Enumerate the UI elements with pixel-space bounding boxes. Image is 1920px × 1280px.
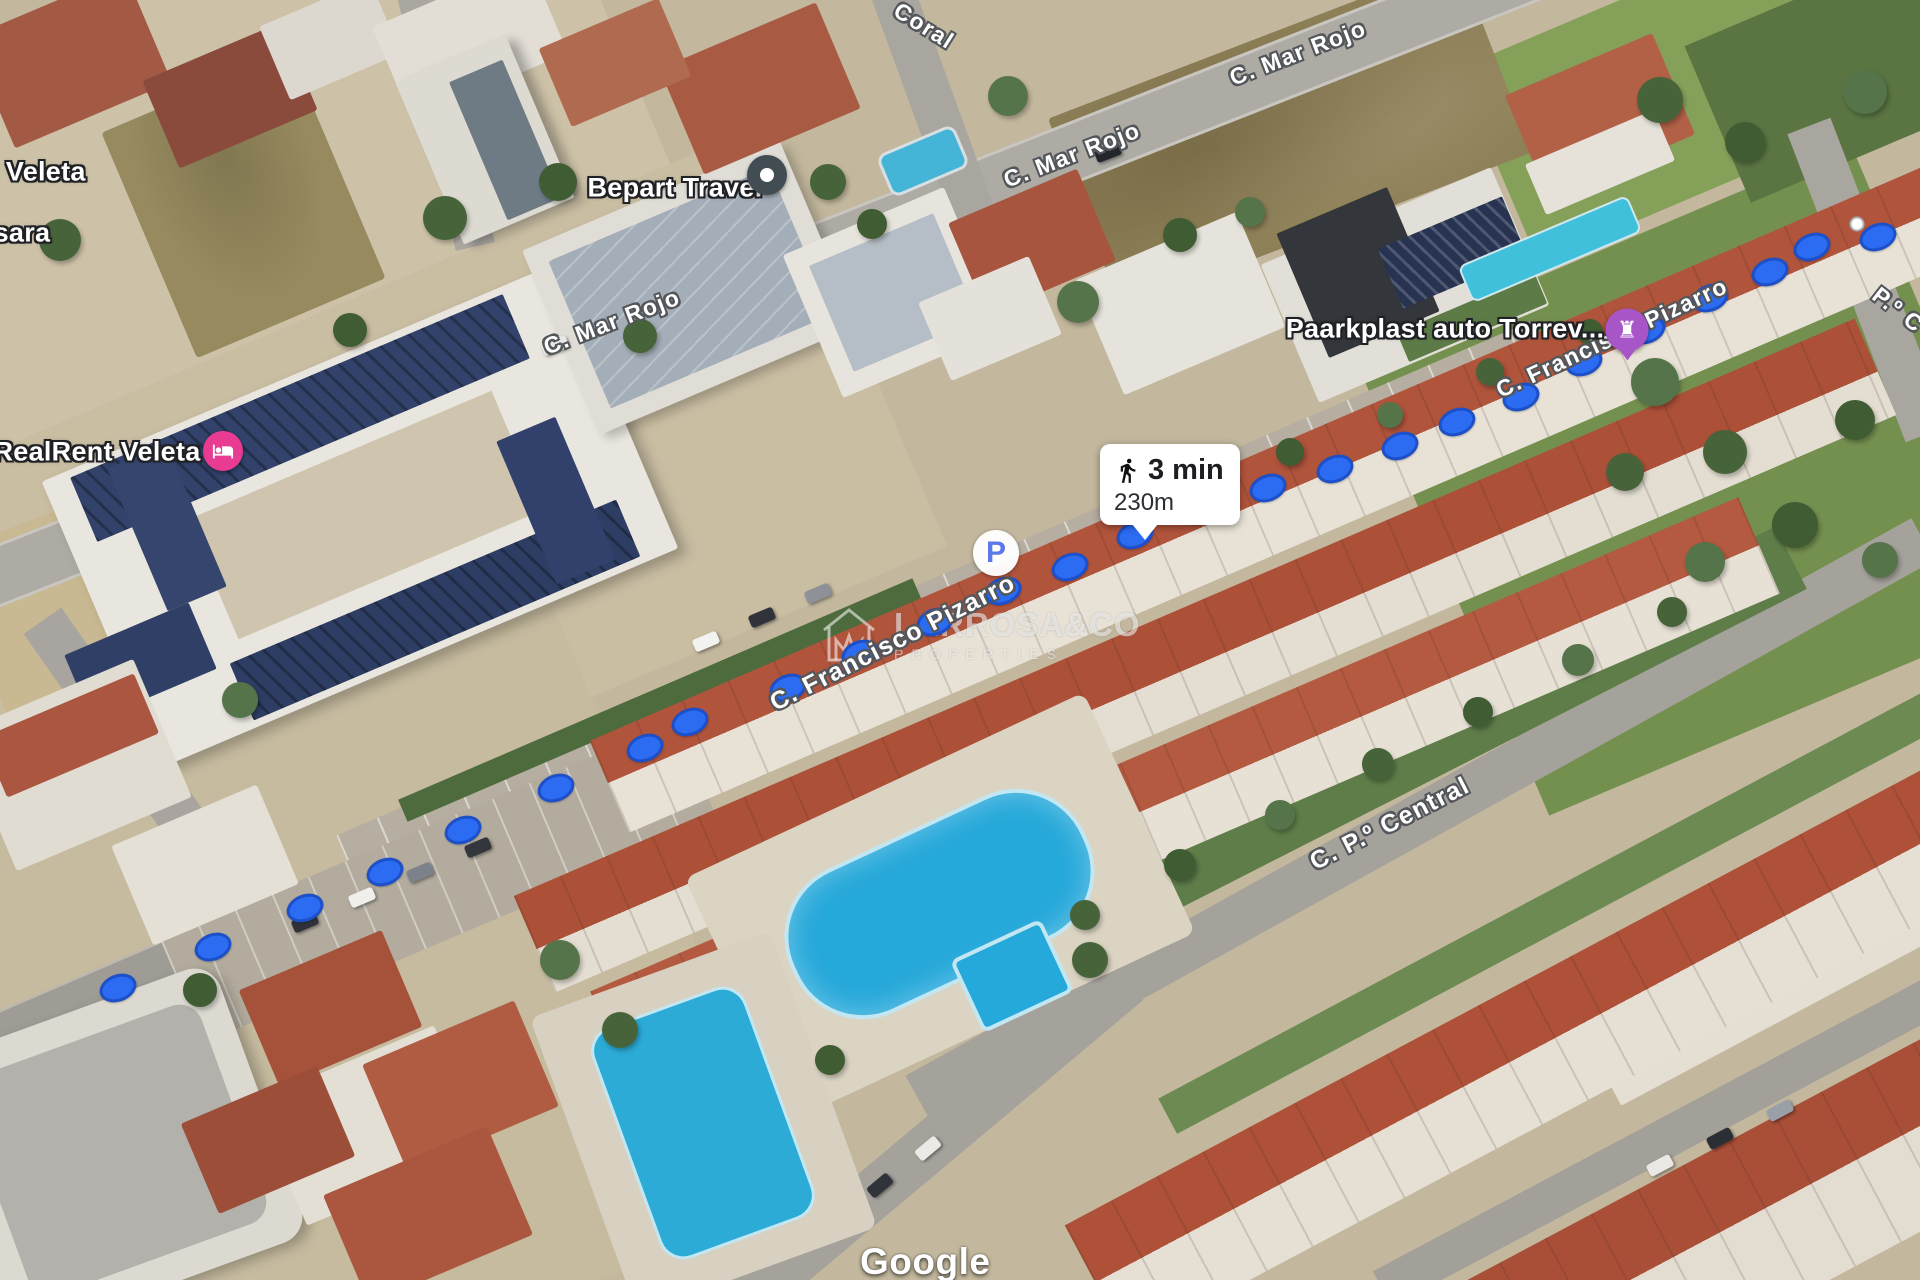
tree <box>1725 122 1765 162</box>
tree <box>1606 453 1644 491</box>
tree <box>539 163 577 201</box>
tree <box>1835 400 1875 440</box>
castle-rook-icon: ♜ <box>1617 319 1638 342</box>
tree <box>857 209 887 239</box>
tree <box>423 196 467 240</box>
tree <box>1362 748 1394 780</box>
marker-center-dot <box>760 168 774 182</box>
tree <box>810 164 846 200</box>
parking-letter: P <box>986 536 1006 570</box>
route-endpoint-dot <box>1850 217 1865 232</box>
tree <box>1772 502 1818 548</box>
tree <box>1057 281 1099 323</box>
tree <box>1703 430 1747 474</box>
tree <box>1072 942 1108 978</box>
tree <box>1657 597 1687 627</box>
google-logo: Google <box>860 1241 990 1280</box>
bed-icon <box>212 440 234 462</box>
tree <box>1685 542 1725 582</box>
tree <box>1862 542 1898 578</box>
poi-label-paarkplast[interactable]: Paarkplast auto Torrev... <box>1286 314 1605 345</box>
poi-label-partial-veleta[interactable]: l Veleta <box>0 157 86 188</box>
tree <box>1265 800 1295 830</box>
route-duration: 3 min <box>1148 454 1224 487</box>
tree <box>222 682 258 718</box>
tree <box>1276 438 1304 466</box>
tree <box>333 313 367 347</box>
tree <box>540 940 580 980</box>
parking-icon[interactable]: P <box>973 530 1019 576</box>
tree <box>815 1045 845 1075</box>
tree <box>1235 197 1265 227</box>
google-maps-satellite-view[interactable]: LARROSA&CO PROPERTIES Coral C. Mar Rojo … <box>0 0 1920 1280</box>
poi-label-partial-sara[interactable]: sara <box>0 218 50 249</box>
walking-person-icon <box>1114 457 1141 484</box>
tree <box>1070 900 1100 930</box>
tree <box>602 1012 638 1048</box>
terrain-shape <box>659 2 860 174</box>
route-info-bubble[interactable]: 3 min 230m <box>1100 444 1240 525</box>
tree <box>1164 849 1196 881</box>
tree <box>1377 402 1403 428</box>
realrent-lodging-marker-icon[interactable] <box>203 431 243 471</box>
tree <box>1637 77 1683 123</box>
poi-label-bepart-travel[interactable]: Bepart Travel <box>588 173 763 204</box>
route-distance: 230m <box>1114 489 1224 517</box>
tree <box>1631 358 1679 406</box>
tree <box>1562 644 1594 676</box>
paarkplast-attraction-marker-icon[interactable]: ♜ <box>1606 309 1649 352</box>
poi-label-realrent-veleta[interactable]: RealRent Veleta <box>0 437 201 468</box>
tree <box>1843 70 1887 114</box>
tree <box>183 973 217 1007</box>
tree <box>1163 218 1197 252</box>
bepart-travel-marker-icon[interactable] <box>747 155 787 195</box>
tree <box>1463 697 1493 727</box>
tree <box>988 76 1028 116</box>
